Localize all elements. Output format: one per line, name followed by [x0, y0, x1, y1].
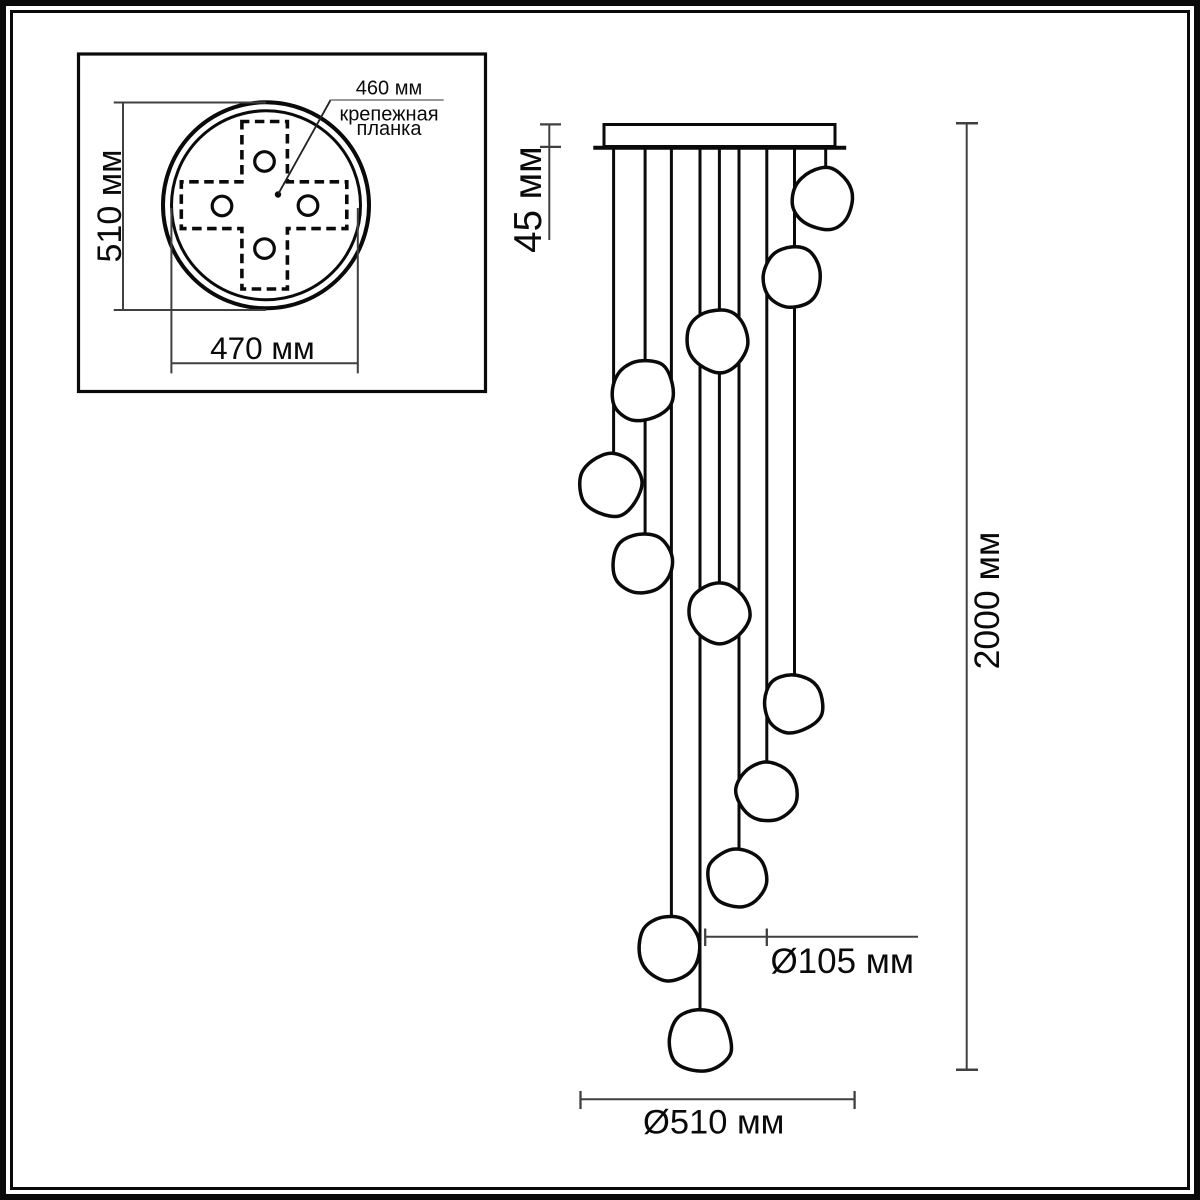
- svg-text:2000 мм: 2000 мм: [967, 532, 1007, 670]
- svg-text:Ø510 мм: Ø510 мм: [643, 1104, 784, 1142]
- svg-text:470 мм: 470 мм: [210, 330, 315, 366]
- svg-text:45 мм: 45 мм: [507, 146, 550, 252]
- svg-text:Ø105 мм: Ø105 мм: [770, 942, 913, 981]
- svg-text:планка: планка: [357, 118, 423, 140]
- svg-text:510 мм: 510 мм: [91, 150, 129, 263]
- svg-text:460 мм: 460 мм: [356, 78, 422, 100]
